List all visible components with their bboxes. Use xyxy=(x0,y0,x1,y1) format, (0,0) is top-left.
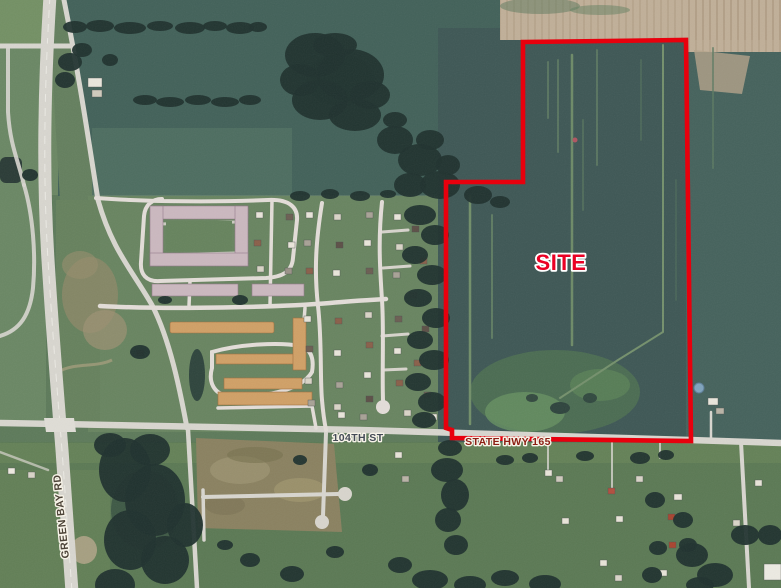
aerial-photo-canvas: SITE 104TH ST STATE HWY 165 GREEN BAY RD xyxy=(0,0,781,588)
road-label-state-hwy-165: STATE HWY 165 xyxy=(465,436,551,448)
site-label: SITE xyxy=(536,250,587,275)
road-label-104th-st: 104TH ST xyxy=(332,432,383,444)
photo-grain-overlay xyxy=(0,0,781,588)
aerial-map: SITE 104TH ST STATE HWY 165 GREEN BAY RD xyxy=(0,0,781,588)
